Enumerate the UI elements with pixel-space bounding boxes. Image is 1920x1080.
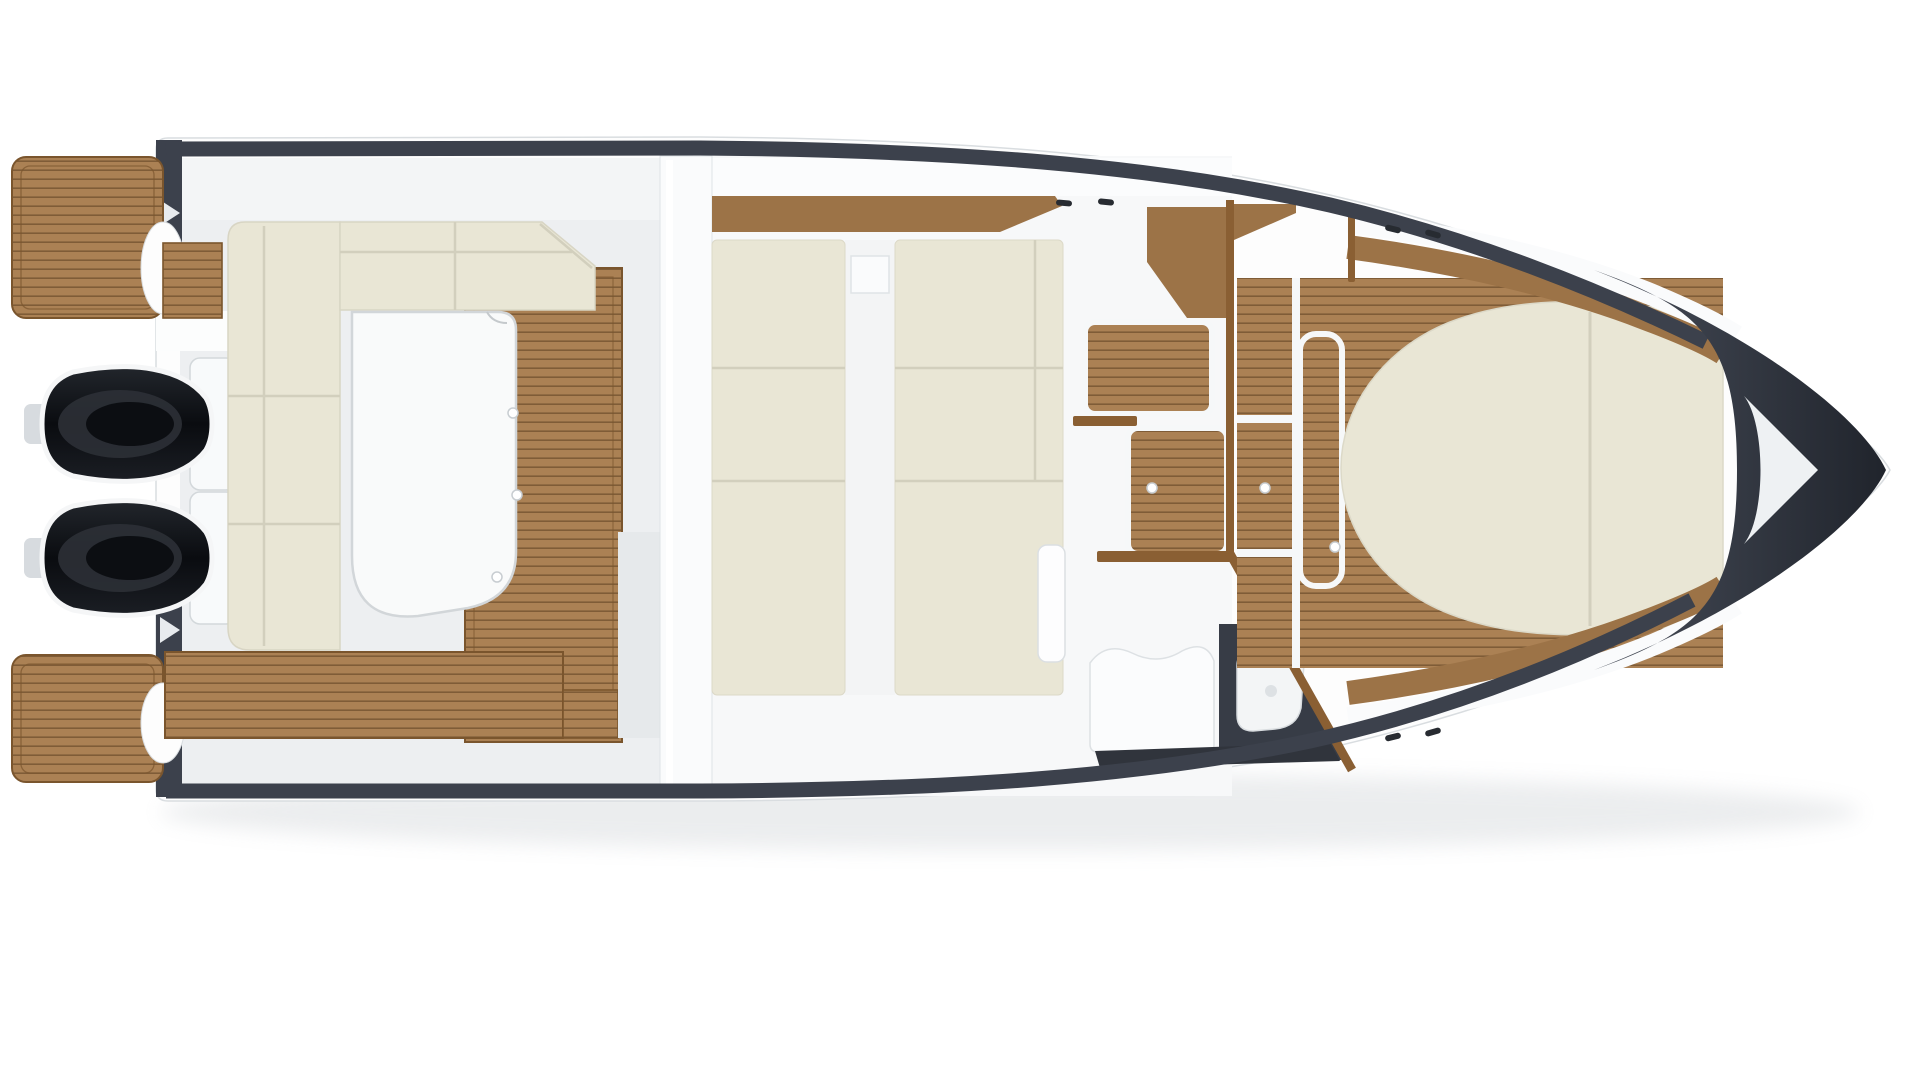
- helm-step-upper: Teak helm step (upper): [1085, 322, 1212, 414]
- windshield-frame: Windshield frame: [1226, 200, 1234, 554]
- stern-step: Teak transom step: [163, 243, 222, 318]
- berth-aft: Cabin berth cushion (aft): [712, 240, 845, 695]
- engine-core: [86, 536, 174, 580]
- cabin: Cabin side wood trim Cabin center aisle …: [712, 196, 1065, 695]
- swim-platform-port: Teak swim platform (port): [12, 157, 185, 318]
- boat-floorplan-page: Top-view deck plan of a motor boat with …: [0, 0, 1920, 1080]
- companionway-step: [618, 532, 662, 738]
- settee-vertical: [228, 222, 340, 650]
- swim-platform-starboard: Teak swim platform (starboard): [12, 655, 185, 782]
- cockpit: Teak cockpit sole Aft teak bench L-shape…: [165, 222, 622, 742]
- cabin-wood-trim: Cabin side wood trim: [712, 196, 1062, 232]
- cockpit-table: Cockpit table: [352, 312, 516, 617]
- aisle-step: [851, 256, 889, 293]
- boat-floorplan: Hull drop shadow Hull (top view) Transom…: [0, 0, 1920, 1080]
- engine-core: [86, 402, 174, 446]
- outboard-engine-starboard: Outboard engine (starboard): [24, 492, 236, 624]
- cockpit-deck-upper: [180, 158, 666, 220]
- cabin-aisle: Cabin center aisle: [845, 240, 895, 695]
- sink-drain: [1265, 685, 1277, 697]
- outboard-engine-port: Outboard engine (port): [24, 358, 236, 490]
- sun-pad: Bow sun pad: [1341, 302, 1723, 635]
- cabin-door: Cabin locker door: [1038, 545, 1065, 662]
- settee-horizontal: [340, 222, 595, 310]
- helm-seat: Helm seat module: [1090, 647, 1214, 752]
- helm-step-lower: Teak helm step (lower): [1128, 428, 1227, 554]
- aft-teak-bench: Aft teak bench: [165, 652, 618, 738]
- grab-rail-post: Bow grab rail post: [1348, 208, 1355, 282]
